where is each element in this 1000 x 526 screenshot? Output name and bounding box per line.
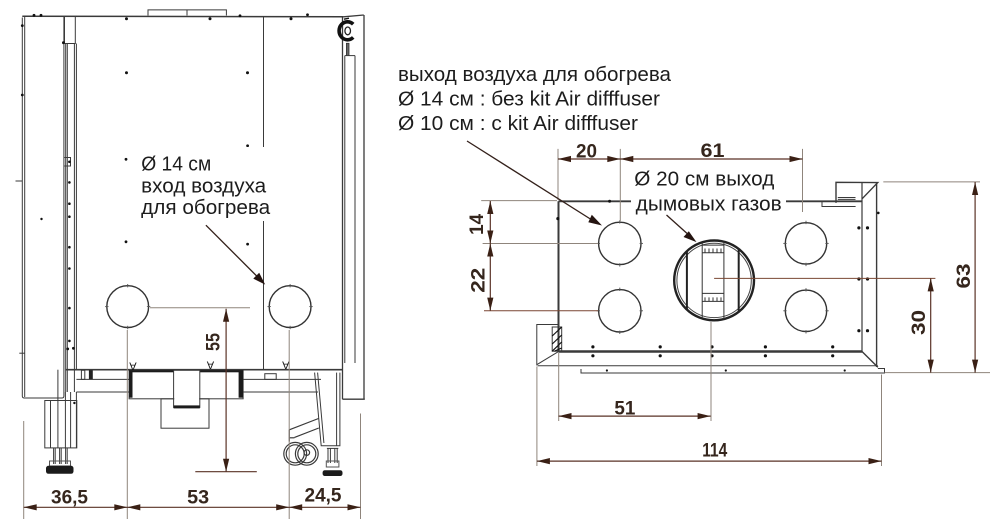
svg-text:Ø 20 см выход: Ø 20 см выход xyxy=(634,169,774,191)
svg-text:51: 51 xyxy=(614,399,635,420)
svg-text:Ø 14 см: Ø 14 см xyxy=(141,154,211,176)
svg-text:14: 14 xyxy=(467,213,488,234)
svg-text:дымовых газов: дымовых газов xyxy=(636,194,782,216)
svg-text:Ø 14 см : без kit Air difffuse: Ø 14 см : без kit Air difffuser xyxy=(398,89,660,111)
svg-text:20: 20 xyxy=(576,142,597,163)
svg-text:A: A xyxy=(129,360,137,372)
svg-text:A: A xyxy=(206,359,214,371)
svg-text:выход воздуха для обогрева: выход воздуха для обогрева xyxy=(398,64,672,86)
svg-text:Ø 10 см : с kit Air difffuser: Ø 10 см : с kit Air difffuser xyxy=(398,113,638,135)
svg-text:63: 63 xyxy=(954,264,975,289)
svg-text:30: 30 xyxy=(909,310,930,335)
svg-text:24,5: 24,5 xyxy=(305,485,342,506)
svg-text:61: 61 xyxy=(701,141,725,162)
svg-text:22: 22 xyxy=(469,268,490,293)
svg-text:вход воздуха: вход воздуха xyxy=(141,175,267,197)
svg-text:для обогрева: для обогрева xyxy=(141,197,271,219)
svg-text:36,5: 36,5 xyxy=(51,487,88,508)
svg-text:A: A xyxy=(281,359,289,371)
svg-text:55: 55 xyxy=(204,333,225,351)
svg-text:114: 114 xyxy=(702,441,727,462)
svg-text:53: 53 xyxy=(187,487,209,508)
